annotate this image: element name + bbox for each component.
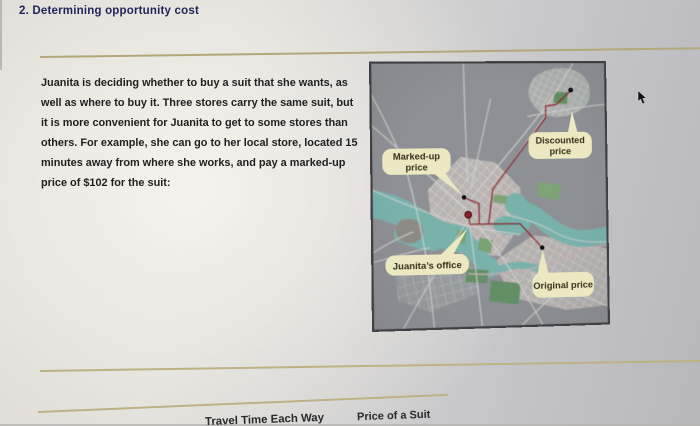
svg-text:Original price: Original price — [533, 280, 593, 292]
svg-text:Discounted: Discounted — [535, 135, 585, 145]
svg-text:Juanita’s office: Juanita’s office — [393, 260, 462, 273]
svg-text:price: price — [549, 146, 571, 156]
svg-text:Marked-up: Marked-up — [393, 151, 441, 162]
svg-text:price: price — [405, 162, 427, 172]
